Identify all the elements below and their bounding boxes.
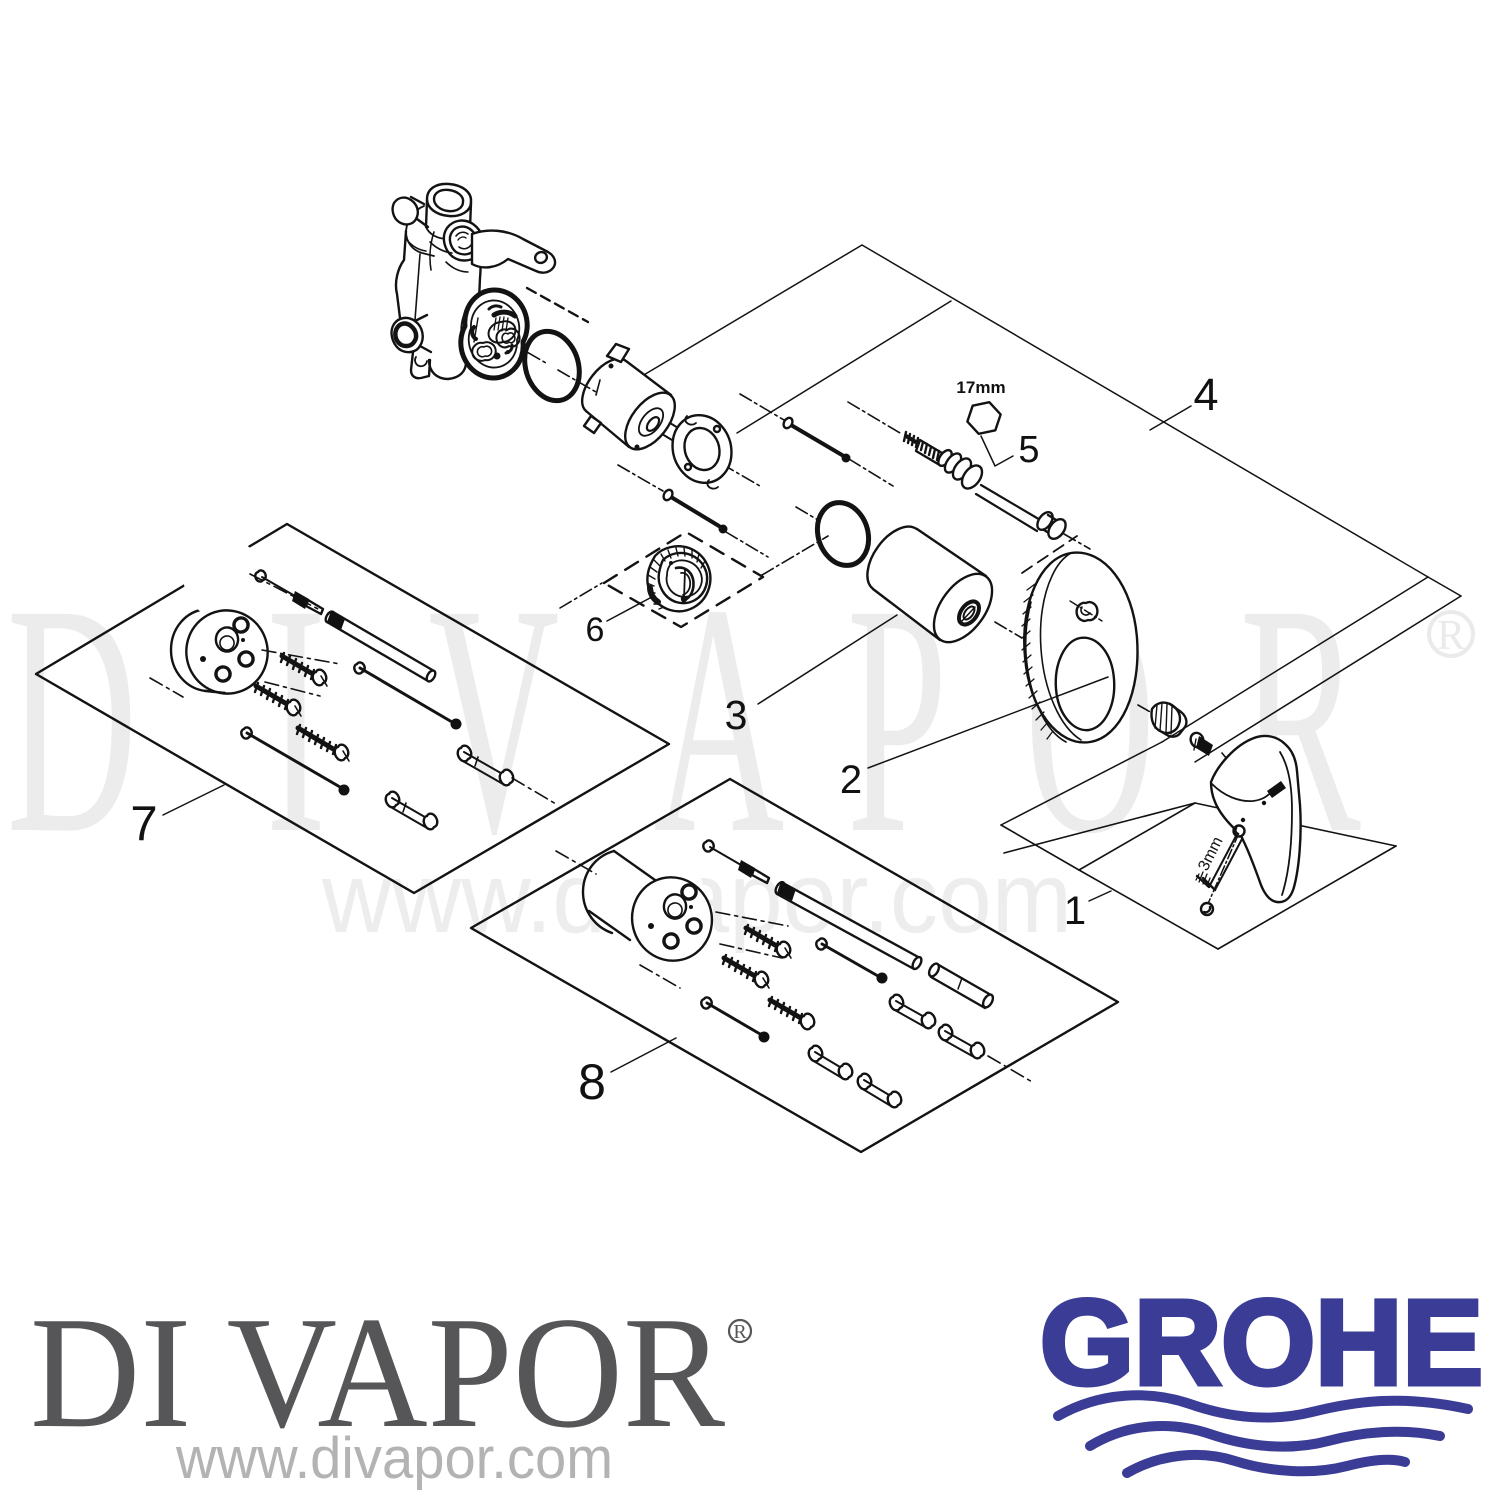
svg-text:8: 8 <box>578 1054 606 1110</box>
svg-text:3mm: 3mm <box>1195 834 1226 873</box>
svg-text:5: 5 <box>1018 429 1039 471</box>
svg-text:www.divapor.com: www.divapor.com <box>175 1426 613 1491</box>
svg-text:6: 6 <box>586 611 605 649</box>
svg-text:2: 2 <box>840 758 862 802</box>
svg-text:3: 3 <box>725 692 748 738</box>
svg-text:I: I <box>266 536 326 902</box>
svg-text:GROHE: GROHE <box>1040 1274 1483 1410</box>
svg-text:R: R <box>733 1321 747 1343</box>
svg-text:1: 1 <box>1064 889 1086 933</box>
svg-text:D: D <box>7 536 138 902</box>
svg-text:17mm: 17mm <box>956 378 1005 397</box>
svg-text:4: 4 <box>1193 369 1218 420</box>
svg-text:7: 7 <box>130 797 157 851</box>
svg-text:R: R <box>1437 613 1465 659</box>
